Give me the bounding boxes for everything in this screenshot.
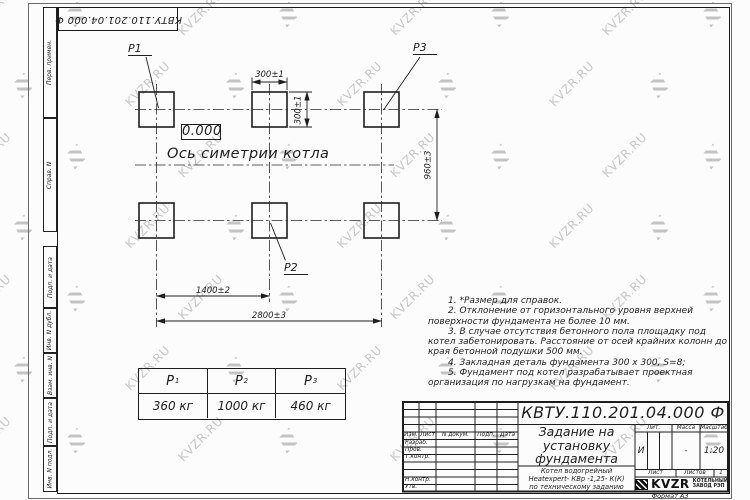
title-block-title: Задание на установку фундамента	[518, 425, 635, 467]
load-subscript: 1	[175, 377, 179, 385]
load-table-header-p1: Р1	[139, 369, 208, 394]
sheets-value: 1	[714, 470, 728, 478]
kvzr-logo-text: KVZR	[651, 477, 690, 491]
title-block-doc-number: КВТУ.110.201.04.000 Ф	[518, 402, 728, 425]
brand-caption-line: ЗАВОД РЭП	[693, 484, 728, 489]
load-table-value-p3: 460 кг	[276, 394, 345, 418]
point-label-p1: Р1	[128, 42, 152, 56]
load-symbol: Р	[166, 374, 174, 389]
staff-row-label: Утв.	[403, 484, 436, 491]
load-table-value-p1: 360 кг	[139, 394, 208, 418]
leader-p3	[384, 57, 421, 110]
staff-row-label: Т.контр.	[403, 454, 436, 461]
dim-label-2800: 2800±3	[246, 311, 292, 321]
subtitle-line: по техническому заданию	[518, 483, 635, 491]
leader-p2	[271, 223, 286, 261]
note-paragraph: 4. Закладная деталь фундамента 300 х 300…	[428, 358, 736, 368]
manufacturer-brand: KVZR КОТЕЛЬНЫЙ ЗАВОД РЭП	[635, 477, 728, 492]
dim-label-300-width: 300±1	[247, 70, 292, 80]
load-symbol: Р	[235, 374, 243, 389]
note-paragraph: 5. Фундамент под котел разрабатывает про…	[428, 368, 736, 389]
load-symbol: Р	[304, 374, 312, 389]
staff-rows: Разраб.Пров.Т.контр.Н.контр.Утв.	[403, 440, 436, 492]
note-paragraph: 2. Отклонение от горизонтального уровня …	[428, 306, 736, 327]
staff-row-label	[403, 469, 436, 476]
point-label-p3: Р3	[413, 41, 437, 55]
brand-caption: КОТЕЛЬНЫЙ ЗАВОД РЭП	[693, 479, 728, 490]
title-block-subtitle: Котел водогрейныйHeatexpert- КВр -1,25- …	[518, 466, 635, 492]
load-subscript: 3	[313, 377, 317, 385]
point-label-p2: Р2	[284, 261, 308, 275]
change-col-podp: Подп.	[475, 432, 497, 440]
mass-value: -	[672, 432, 700, 470]
load-table: Р1 Р2 Р3 360 кг 1000 кг 460 кг	[138, 368, 346, 420]
staff-row-label: Н.контр.	[403, 477, 436, 484]
drawing-sheet: KVZR.RUKVZR.RUKVZR.RUKVZR.RUKVZR.RUKVZR.…	[0, 0, 750, 500]
scale-header: Масштаб	[700, 425, 728, 433]
sheets-label: Листов	[676, 470, 714, 478]
change-col-izm: Изм.	[403, 432, 419, 440]
dim-label-1400: 1400±2	[190, 286, 236, 296]
centerlines	[135, 84, 442, 327]
technical-notes: 1. *Размер для справок.2. Отклонение от …	[428, 296, 736, 389]
lit-value: И	[635, 432, 647, 470]
elevation-mark: 0.000	[181, 124, 221, 140]
dim-label-300-height: 300±1	[293, 87, 303, 132]
load-table-header-p2: Р2	[208, 369, 277, 394]
note-paragraph: 1. *Размер для справок.	[428, 296, 736, 306]
kvzr-logo-icon	[635, 479, 648, 490]
staff-row-label	[403, 462, 436, 469]
lit-header: Лит.	[635, 425, 672, 433]
subtitle-line: Котел водогрейный	[518, 467, 635, 475]
staff-row-label: Пров.	[403, 447, 436, 454]
load-table-header-p3: Р3	[276, 369, 345, 394]
symmetry-axis-label: Ось симетрии котла	[167, 146, 329, 162]
mass-header: Масса	[672, 425, 700, 433]
change-col-ndokum: N докум.	[436, 432, 475, 440]
subtitle-line: Heatexpert- КВр -1,25- К(К)	[518, 475, 635, 483]
load-table-value-p2: 1000 кг	[208, 394, 277, 418]
staff-row-label: Разраб.	[403, 440, 436, 447]
leader-p1	[146, 57, 159, 108]
change-col-list: Лист	[419, 432, 436, 440]
note-paragraph: 3. В случае отсутствия бетонного пола пл…	[428, 327, 736, 358]
load-subscript: 2	[244, 377, 248, 385]
sheet-label: Лист	[635, 470, 676, 478]
scale-value: 1:20	[700, 432, 728, 470]
format-label: Формат А3	[628, 492, 712, 500]
dim-label-960: 960±3	[423, 143, 433, 188]
change-col-data: Дата	[497, 432, 518, 440]
